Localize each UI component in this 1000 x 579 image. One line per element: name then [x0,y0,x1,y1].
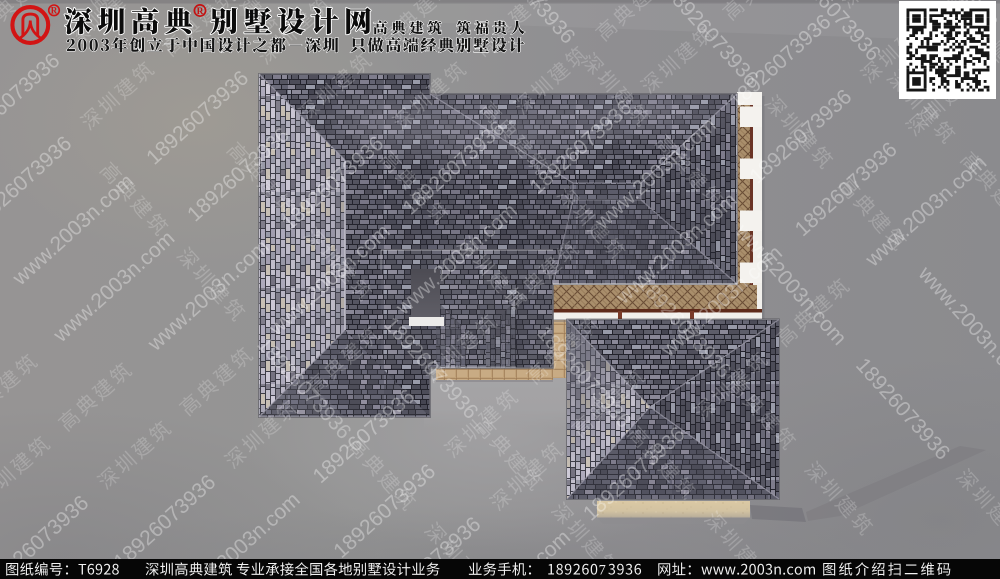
svg-text:R: R [51,5,58,15]
svg-text:7: 7 [599,563,606,579]
svg-text:R: R [197,7,204,17]
